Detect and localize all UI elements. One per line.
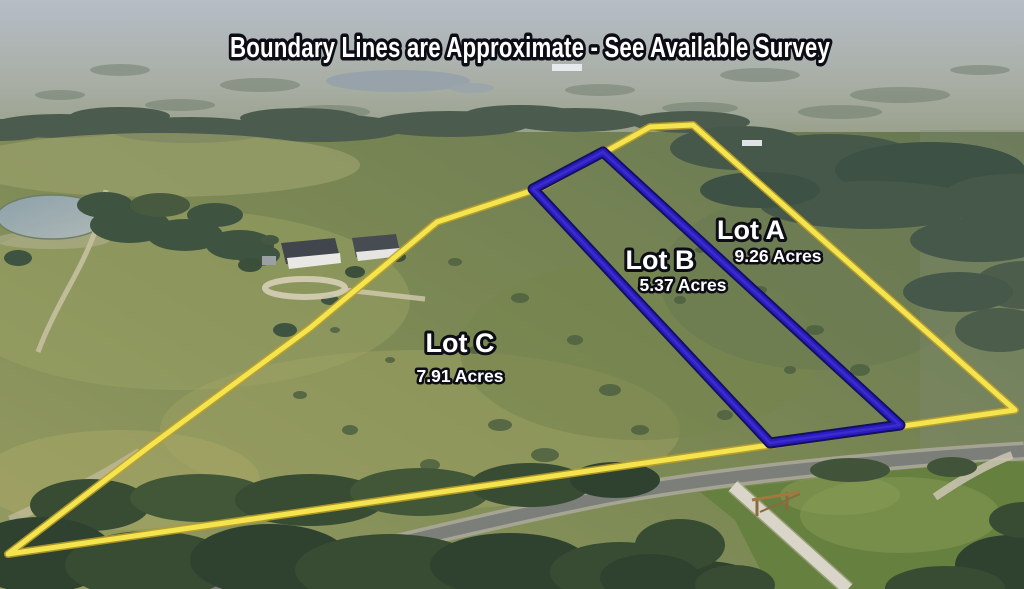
lot-c-label: Lot C bbox=[426, 328, 495, 358]
lot-a-label: Lot A bbox=[717, 215, 785, 245]
lot-b-label: Lot B bbox=[626, 245, 695, 275]
disclaimer-title: Boundary Lines are Approximate - See Ava… bbox=[230, 32, 830, 64]
aerial-lot-map: Boundary Lines are Approximate - See Ava… bbox=[0, 0, 1024, 589]
lot-b-acres: 5.37 Acres bbox=[640, 275, 727, 295]
distant-barn bbox=[742, 140, 762, 146]
lot-a-acres: 9.26 Acres bbox=[735, 246, 822, 266]
distant-lake bbox=[326, 70, 470, 92]
lot-c-acres: 7.91 Acres bbox=[417, 366, 504, 386]
aerial-photo: Boundary Lines are Approximate - See Ava… bbox=[0, 0, 1024, 589]
distant-building bbox=[552, 64, 582, 71]
shed bbox=[262, 256, 276, 265]
